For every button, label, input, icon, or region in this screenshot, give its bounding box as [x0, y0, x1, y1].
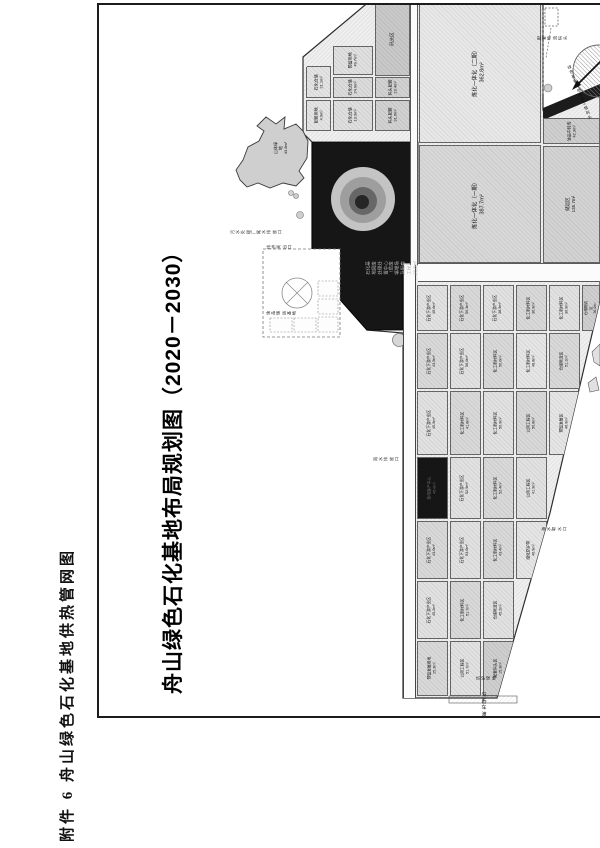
parcel: 码头区	[375, 3, 410, 76]
parcel-label: 预留用地 49.7m²	[348, 53, 359, 69]
parcel-label: 化工新材料区 36.9m²	[526, 297, 536, 320]
parcel-label: 石化下游产业区 53.0m²	[460, 537, 470, 564]
parcel-label: 石化仓储 13.3m²	[348, 108, 359, 124]
parcel: 石化下游产业区 45.9m²	[417, 391, 448, 455]
map-area: 炼化一体化（二期） 362.8m²炼化一体化（一期） 387.7m²油品中转库 …	[0, 0, 600, 848]
map-annotation: 油品储运基地	[265, 311, 296, 315]
parcel-label: 仓储物流区 36.0m²	[584, 300, 598, 316]
parcel: 油品中转库 42.3m²	[543, 118, 600, 144]
parcel-label: 化工新材料区 43.4m²	[493, 539, 503, 562]
parcel-label: 码头配套 23.4m²	[387, 80, 398, 96]
parcel-label: 石化仓储 21.1m²	[313, 74, 324, 90]
parcel-label: 化工新材料区 51.7m²	[460, 599, 470, 622]
islet	[592, 344, 600, 366]
map-annotation: 配套物流码头	[536, 36, 567, 40]
compound-cell	[270, 318, 292, 332]
islet-dot	[294, 194, 299, 199]
outfall-dot	[297, 212, 304, 219]
parcel: 石化下游产业区 53.0m²	[450, 521, 481, 579]
parcel: 码头配套 23.4m²	[375, 77, 410, 98]
map-title: 舟山绿色石化基地布局规划图（2020－2030）	[157, 270, 183, 694]
outfall-dot	[289, 191, 294, 196]
parcel-label: 石化下游产业区 38.9m²	[493, 295, 503, 322]
compound-cell	[318, 281, 338, 296]
parcel: 公用工程区 51.7m²	[450, 641, 481, 696]
parcel: 石化仓储 21.1m²	[306, 66, 331, 98]
parcel: 热电联产中心 45.0m²	[417, 457, 448, 519]
map-annotation: 防护绿地	[476, 676, 497, 680]
parcel: 石化仓储 13.3m²	[333, 100, 373, 131]
parcel: 石化下游产业区 50.3m²	[450, 285, 481, 331]
parcel-label: 石化下游产业区 43.0m²	[427, 537, 437, 564]
parcel: 预留发展用地 25.3m²	[417, 641, 448, 696]
parcel-label: 炼化一体化（二期） 362.8m²	[473, 48, 488, 98]
parcel: 仓储物流区 51.1m²	[549, 333, 580, 389]
berth-leader	[546, 28, 551, 58]
parcel: 储运区 135.7m²	[543, 146, 600, 263]
parcel: 仓储物流区 45.2m²	[483, 581, 514, 639]
parcel: 化工新材料区 51.7m²	[450, 581, 481, 639]
parcel-label: 仓储物流区 45.2m²	[493, 601, 503, 620]
parcel-label: 预留发展用地 25.3m²	[427, 657, 437, 680]
attachment-caption: 附件 6 舟山绿色石化基地供热管网图	[56, 546, 76, 842]
parcel: 炼化一体化（二期） 362.8m²	[419, 2, 541, 143]
map-annotation: 马岙车渡口	[481, 692, 486, 725]
parcel-label: 石化下游产业区 43.5m²	[427, 348, 437, 375]
parcel-label: 石化下游产业区 45.9m²	[427, 410, 437, 437]
parcel: 石化下游产业区 38.9m²	[483, 285, 514, 331]
parcel: 化工新材料区 50.0m²	[483, 333, 514, 389]
map-annotation: 排洪闸出口	[266, 245, 292, 249]
document-page: 附件 6 舟山绿色石化基地供热管网图	[0, 0, 600, 848]
map-annotation: 山体绿地 43.8m²	[273, 142, 289, 154]
parcel-label: 热电联产中心 45.0m²	[427, 477, 437, 500]
parcel: 石化下游产业区 43.5m²	[417, 333, 448, 389]
map-annotation: 污水处理厂尾水排放口	[230, 230, 282, 234]
map-annotation: 雨水排放口	[373, 457, 399, 461]
ring-core	[355, 195, 369, 209]
shore-dot	[544, 84, 552, 92]
road-coastal	[403, 265, 416, 698]
parcel-label: 石化仓储 24.9m²	[348, 80, 359, 96]
parcel: 化工新材料区 50.9m²	[483, 391, 514, 455]
parcel-label: 码头配套 31.6m²	[387, 108, 398, 124]
peninsula	[236, 117, 308, 188]
parcel-label: 储运区 135.7m²	[565, 196, 577, 213]
parcel-label: 石化下游产业区 50.3m²	[460, 295, 470, 322]
parcel: 公用工程区 41.9m²	[516, 457, 547, 519]
parcel: 公用工程区 50.8m²	[516, 391, 547, 455]
parcel: 石化下游产业区 56.0m²	[450, 333, 481, 389]
islet	[588, 377, 599, 392]
berth-dashed-rect	[545, 8, 558, 26]
parcel: 石化下游产业区 45.2m²	[417, 581, 448, 639]
parcel-label: 石化下游产业区 45.2m²	[427, 597, 437, 624]
parcel-label: 化工新材料区 30.9m²	[559, 297, 569, 320]
parcel: 化工新材料区 43.4m²	[483, 521, 514, 579]
parcel: 炼化一体化（一期） 387.7m²	[419, 145, 541, 263]
parcel: 预留用地 49.7m²	[333, 46, 373, 75]
parcel: 化工新材料区 48.8m²	[516, 333, 547, 389]
parcel-label: 炼化一体化（一期） 387.7m²	[473, 179, 488, 229]
parcel-label: 石化下游产业区 56.0m²	[460, 348, 470, 375]
parcel-label: 化工新材料区 50.0m²	[493, 350, 503, 373]
parcel-label: 预留发展区 46.9m²	[559, 414, 569, 433]
parcel: 化工新材料区 30.9m²	[549, 285, 580, 331]
parcel-label: 化工新材料区 52.4m²	[493, 477, 503, 500]
parcel-label: 公用工程区 51.7m²	[460, 659, 470, 678]
compound-cell	[294, 318, 316, 332]
parcel: 石化仓储 24.9m²	[333, 77, 373, 98]
parcel: 码头配套 31.6m²	[375, 100, 410, 131]
parcel: 石化下游产业区 52.9m²	[450, 457, 481, 519]
map-annotation: 海水取水口	[541, 527, 567, 531]
parcel-label: 公用工程区 50.8m²	[526, 414, 536, 433]
parcel-label: 化工新材料区 50.9m²	[493, 412, 503, 435]
compound-cell	[318, 317, 338, 332]
parcel-label: 绿化防护带 46.9m²	[526, 541, 536, 560]
compound-cell	[318, 299, 338, 314]
parcel-label: 石化下游产业区 45.6m²	[427, 295, 437, 322]
parcel: 石化下游产业区 43.0m²	[417, 521, 448, 579]
parcel-label: 仓储物流区 51.1m²	[559, 352, 569, 371]
parcel-label: 油品中转库 42.3m²	[566, 121, 577, 141]
parcel: 石化下游产业区 45.6m²	[417, 285, 448, 331]
parcel-label: 配套用地 4.9m²	[313, 108, 324, 124]
parcel-label: 公用工程区 41.9m²	[526, 479, 536, 498]
parcel: 化工新材料区 41.8m²	[450, 391, 481, 455]
parcel-label: 化工新材料区 48.8m²	[526, 350, 536, 373]
parcel-label: 石化下游产业区 52.9m²	[460, 475, 470, 502]
parcel: 化工新材料区 52.4m²	[483, 457, 514, 519]
parcel: 配套用地 4.9m²	[306, 100, 331, 131]
parcel-label: 化工新材料区 41.8m²	[460, 412, 470, 435]
parcel-label: 码头区	[389, 33, 395, 47]
map-annotation: 石化基地固废处理处置中心 （危废填埋场及配套工程） 23.6m²	[366, 261, 419, 275]
parcel: 化工新材料区 36.9m²	[516, 285, 547, 331]
